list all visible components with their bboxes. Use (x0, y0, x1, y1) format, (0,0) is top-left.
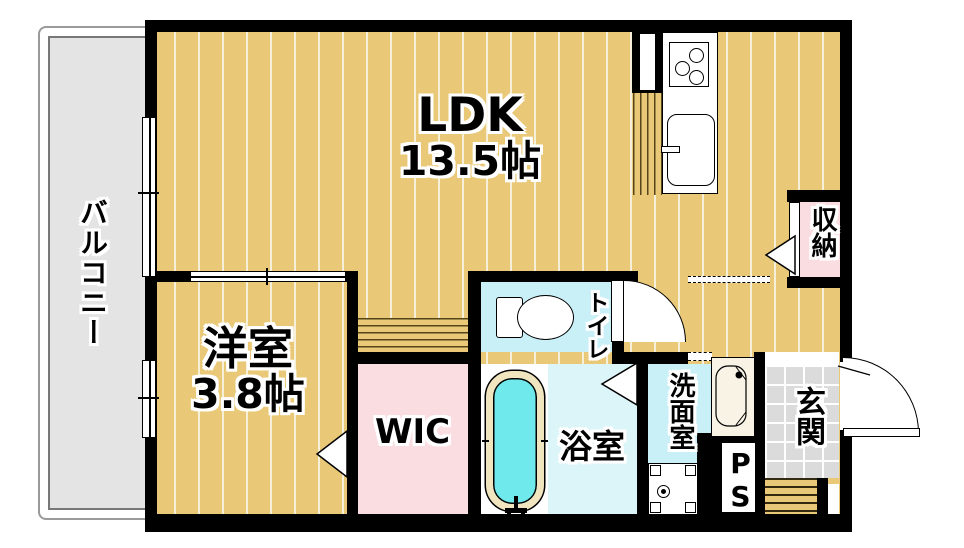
bathtub-icon (486, 371, 544, 511)
entrance-door-leaf (843, 428, 920, 437)
door-triangle-wic (315, 428, 349, 480)
kitchen-faucet-icon (661, 146, 680, 153)
wall (787, 277, 852, 288)
wall (787, 190, 852, 202)
door-triangle-bath (600, 361, 639, 407)
wall (145, 514, 852, 532)
entrance-step-notch (827, 484, 839, 514)
wic-label: WIC (357, 412, 468, 452)
window-tick (138, 192, 159, 194)
balcony-label: バルコニー (72, 198, 112, 348)
sliding-door-tick (266, 268, 268, 285)
bathtub-tick (482, 440, 489, 442)
wall (817, 478, 828, 514)
floor-plan: バルコニー LDK 13.5帖 洋室 3.8帖 WIC 収納 トイレ 浴室 洗面… (0, 0, 964, 548)
entrance-door-frame-line (836, 362, 872, 378)
wall-niche (640, 34, 655, 90)
toilet-label: トイレ (578, 291, 612, 360)
closet-label: 収納 (804, 206, 841, 258)
bedroom-label: 洋室 3.8帖 (148, 326, 348, 416)
bath-label: 浴室 (546, 420, 638, 468)
wall (145, 20, 852, 32)
toilet-door-leaf (611, 280, 624, 342)
entrance-label: 玄関 (785, 386, 829, 446)
wall (347, 352, 481, 364)
ldk-alcove-floor (355, 318, 468, 352)
vanity-icon (711, 357, 755, 437)
dashed-opening-washroom (688, 352, 712, 361)
entrance-step (765, 478, 817, 514)
wall (468, 271, 481, 514)
entrance-threshold (765, 352, 839, 365)
toilet-bowl-icon (517, 295, 574, 340)
window-ldk (142, 117, 156, 277)
dashed-opening-hall (688, 276, 770, 283)
stove-icon (669, 42, 709, 87)
door-triangle-closet (764, 233, 797, 277)
sliding-door-bedroom (190, 271, 346, 282)
ps-label: PS (724, 447, 757, 513)
ldk-label: LDK 13.5帖 (320, 92, 620, 183)
washer-pan-icon (648, 463, 698, 515)
kitchen-floor-strip (633, 92, 662, 195)
washroom-label: 洗面室 (662, 372, 699, 450)
bath-faucet-icon (503, 496, 529, 518)
